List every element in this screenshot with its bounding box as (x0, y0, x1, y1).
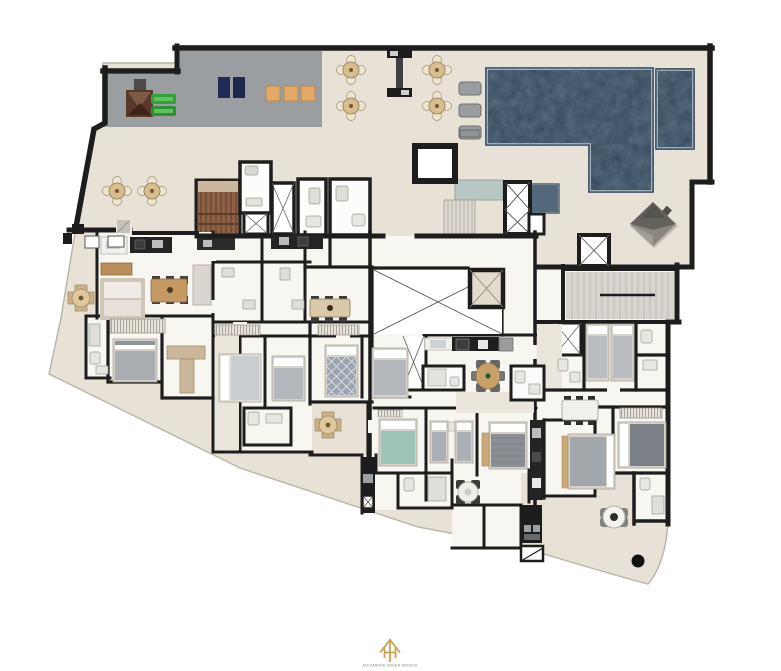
svg-text:ALEXANDRE UNGER IMOVEIS: ALEXANDRE UNGER IMOVEIS (363, 664, 418, 668)
